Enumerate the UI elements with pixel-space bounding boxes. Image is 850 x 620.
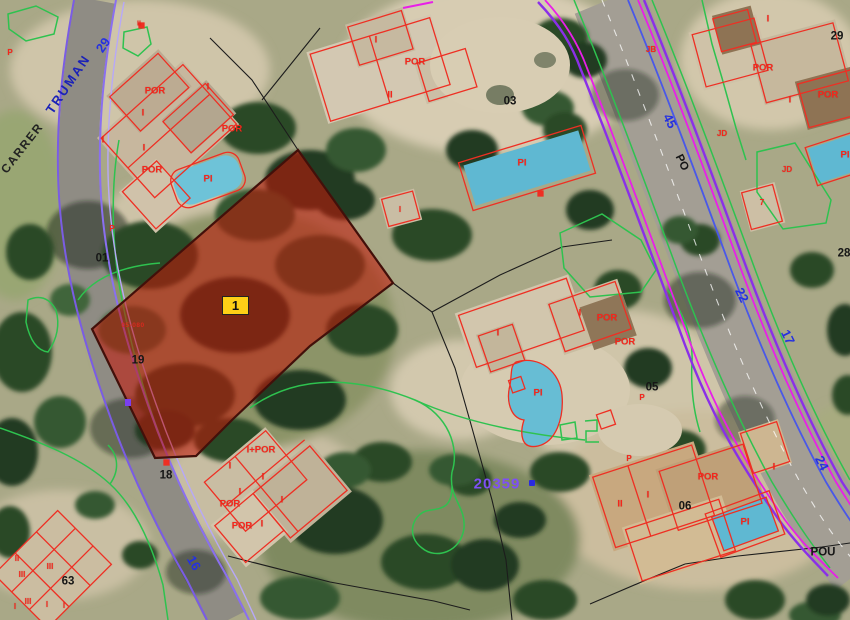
building-label: POR xyxy=(698,472,719,482)
building-label: III xyxy=(47,563,54,571)
building-label: JD xyxy=(782,166,792,174)
building-label: I xyxy=(497,328,500,338)
parcel-number-label: POU xyxy=(811,547,836,559)
building-label: POR xyxy=(615,337,636,347)
building-label: POR xyxy=(222,124,243,134)
building-label: I xyxy=(142,108,145,118)
building-label: III xyxy=(25,598,32,606)
building-label: I+POR xyxy=(247,445,276,455)
building-label: I xyxy=(375,35,378,45)
building-label: PI xyxy=(741,517,750,527)
building-label: JB xyxy=(646,46,656,54)
building-label: I xyxy=(773,462,776,472)
building-label: POR xyxy=(142,165,163,175)
building-label: I xyxy=(46,601,48,609)
building-label: I xyxy=(261,519,264,529)
building-label: I xyxy=(102,135,105,145)
parcel-number-label: 63 xyxy=(62,576,75,588)
parcel-marker-1[interactable]: 1 xyxy=(222,296,249,315)
building-label: POR xyxy=(597,313,618,323)
map-canvas[interactable]: PIIPORIIPORIIPORPIPIPORIIIPIJBIPORIPORJD… xyxy=(0,0,850,620)
building-label: POR xyxy=(753,63,774,73)
parcel-number-label: 19 xyxy=(132,355,145,367)
road-number-label: 17 xyxy=(779,328,797,347)
parcel-number-label: 05 xyxy=(646,382,659,394)
parcel-number-label: 28 xyxy=(838,248,850,260)
labels-layer: PIIPORIIPORIIPORPIPIPORIIIPIJBIPORIPORJD… xyxy=(0,0,850,620)
building-label: I xyxy=(143,143,146,153)
building-label: POR xyxy=(818,90,839,100)
parcel-number-label: 29 xyxy=(831,31,844,43)
parcel-number-label: 18 xyxy=(160,470,173,482)
building-label: P xyxy=(7,49,12,57)
building-label: P xyxy=(639,394,644,402)
building-label: PI xyxy=(841,150,850,160)
building-label: II xyxy=(137,21,141,28)
building-label: III xyxy=(19,571,26,579)
parcel-number-label: 01 xyxy=(96,253,109,265)
building-label: I xyxy=(789,95,792,105)
building-label: JD xyxy=(717,130,727,138)
parcel-number-label: PO xyxy=(672,153,690,173)
building-label: I xyxy=(281,495,284,505)
road-number-label: 45 xyxy=(661,112,679,131)
building-label: I xyxy=(229,461,232,471)
building-label: II xyxy=(617,499,622,509)
building-label: P xyxy=(109,225,114,233)
building-label: 7 xyxy=(760,199,764,207)
building-label: PI xyxy=(534,388,543,398)
building-label: POR xyxy=(220,499,241,509)
building-label: II xyxy=(387,90,392,100)
building-label: I xyxy=(239,487,242,497)
building-label: I xyxy=(579,308,582,318)
building-label: I xyxy=(767,14,770,24)
building-label: I xyxy=(399,206,401,214)
road-number-label: 24 xyxy=(813,454,831,473)
building-label: POR xyxy=(232,521,253,531)
road-number-label: 22 xyxy=(733,286,751,305)
road-number-label: 29 xyxy=(94,35,113,54)
building-label: I xyxy=(262,472,265,482)
building-label: I xyxy=(14,603,16,611)
building-label: I xyxy=(63,602,65,610)
building-label: I xyxy=(207,82,210,92)
building-label: POR xyxy=(145,86,166,96)
parcel-number-label: 06 xyxy=(679,501,692,513)
building-label: P xyxy=(626,455,631,463)
road-number-label: 16 xyxy=(185,553,203,572)
parcel-number-label: 03 xyxy=(504,96,517,108)
building-label: II xyxy=(15,555,19,563)
building-label: POR xyxy=(405,57,426,67)
building-label: PI xyxy=(518,158,527,168)
building-label: PI xyxy=(204,174,213,184)
building-label: I xyxy=(647,490,650,500)
